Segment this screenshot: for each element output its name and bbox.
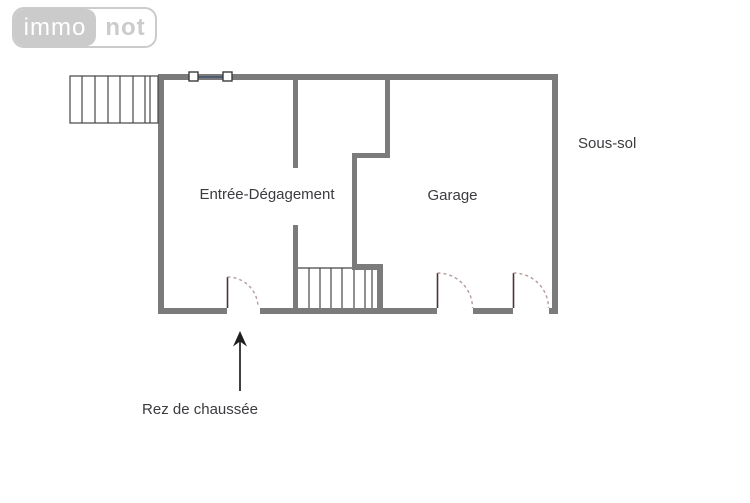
wall-bottom-segment — [158, 308, 227, 314]
door-swing-arc-icon — [514, 273, 549, 308]
door-garage-1 — [438, 273, 473, 308]
wall-interior — [352, 153, 357, 270]
wall-interior — [385, 74, 390, 158]
door-entrance — [228, 277, 259, 308]
wall-interior — [293, 225, 298, 314]
interior-stairs-icon — [298, 268, 372, 308]
exterior-stairs-icon — [70, 76, 158, 123]
wall-interior — [352, 153, 390, 158]
wall-left — [158, 74, 164, 314]
floor-plan-page: immo not — [0, 0, 750, 503]
door-garage-2 — [514, 273, 549, 308]
up-arrow-icon — [233, 331, 247, 391]
caption-rez-de-chaussee: Rez de chaussée — [140, 401, 260, 418]
door-swing-arc-icon — [228, 277, 259, 308]
floor-title-sous-sol: Sous-sol — [578, 135, 636, 152]
floor-plan-drawing — [0, 0, 750, 503]
door-swing-arc-icon — [438, 273, 473, 308]
wall-interior — [293, 74, 298, 168]
wall-interior — [377, 264, 383, 314]
wall-bottom-segment — [473, 308, 513, 314]
wall-bottom-segment — [549, 308, 558, 314]
room-label-garage: Garage — [410, 187, 495, 204]
wall-right — [552, 74, 558, 314]
room-label-entree-degagement: Entrée-Dégagement — [182, 186, 352, 203]
wall-bottom-segment — [260, 308, 437, 314]
